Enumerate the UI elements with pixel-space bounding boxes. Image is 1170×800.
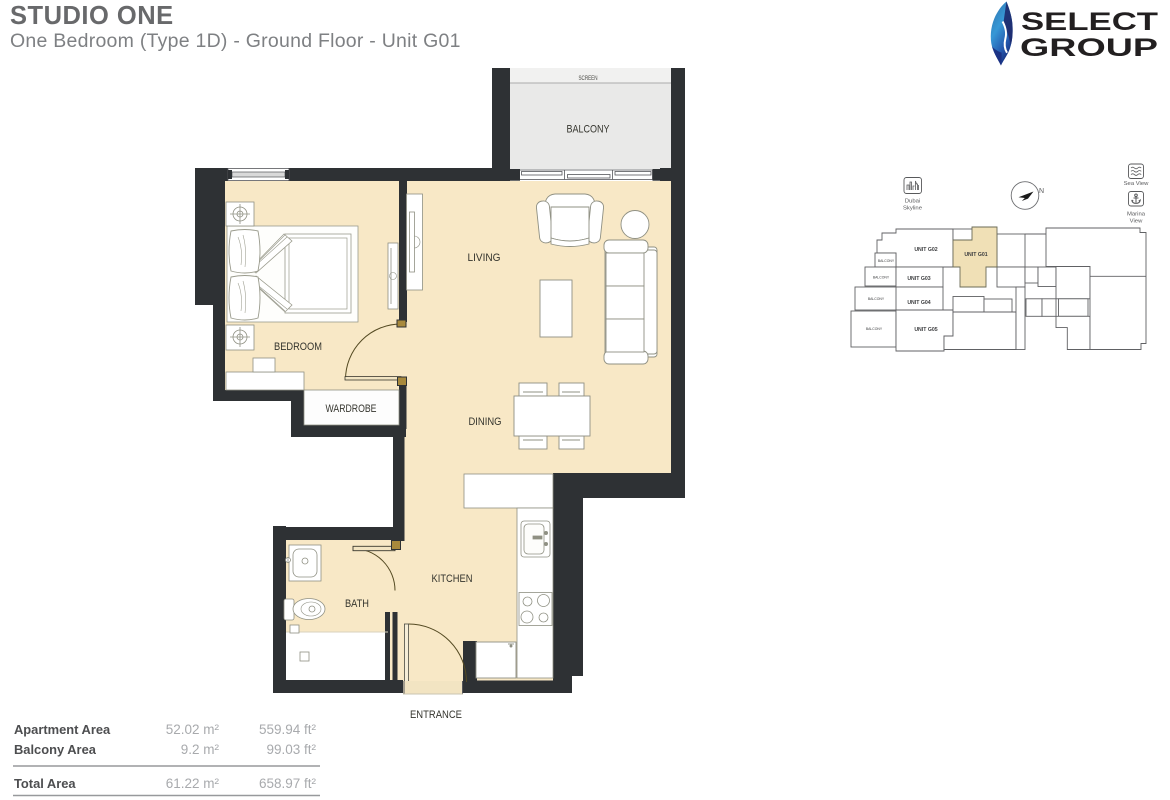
svg-text:KITCHEN: KITCHEN [432, 573, 473, 585]
svg-text:99.03 ft²: 99.03 ft² [266, 742, 316, 757]
svg-text:Balcony Area: Balcony Area [14, 742, 97, 757]
svg-text:9.2 m²: 9.2 m² [181, 742, 220, 757]
svg-text:Dubai: Dubai [905, 199, 920, 205]
svg-text:BALCONY: BALCONY [873, 276, 890, 280]
svg-text:BALCONY: BALCONY [878, 259, 895, 263]
svg-text:N: N [1039, 188, 1044, 195]
svg-text:Marina: Marina [1127, 212, 1146, 218]
svg-text:52.02 m²: 52.02 m² [166, 722, 220, 737]
svg-text:BALCONY: BALCONY [567, 124, 611, 136]
svg-text:BALCONY: BALCONY [866, 327, 883, 331]
svg-text:658.97 ft²: 658.97 ft² [259, 776, 317, 791]
svg-text:Skyline: Skyline [903, 206, 923, 212]
svg-text:61.22 m²: 61.22 m² [166, 776, 220, 791]
svg-text:Sea View: Sea View [1124, 181, 1150, 187]
svg-text:SELECT: SELECT [1021, 8, 1158, 36]
svg-text:GROUP: GROUP [1020, 34, 1158, 62]
svg-text:UNIT G05: UNIT G05 [914, 327, 937, 333]
svg-text:WARDROBE: WARDROBE [326, 403, 377, 415]
svg-text:559.94 ft²: 559.94 ft² [259, 722, 317, 737]
svg-text:View: View [1130, 219, 1143, 225]
svg-text:BEDROOM: BEDROOM [274, 341, 322, 353]
svg-text:STUDIO ONE: STUDIO ONE [10, 2, 174, 30]
svg-text:UNIT G04: UNIT G04 [907, 300, 930, 306]
svg-text:Total Area: Total Area [14, 776, 76, 791]
svg-text:BALCONY: BALCONY [868, 297, 885, 301]
svg-text:UNIT G01: UNIT G01 [964, 252, 987, 258]
svg-text:BATH: BATH [345, 598, 369, 610]
svg-text:UNIT G02: UNIT G02 [914, 247, 937, 253]
svg-text:Apartment Area: Apartment Area [14, 722, 111, 737]
svg-text:One Bedroom (Type 1D) - Ground: One Bedroom (Type 1D) - Ground Floor - U… [10, 30, 461, 52]
svg-text:DINING: DINING [469, 416, 502, 428]
svg-text:UNIT G03: UNIT G03 [907, 276, 930, 282]
svg-text:ENTRANCE: ENTRANCE [410, 709, 462, 721]
svg-text:LIVING: LIVING [468, 252, 501, 264]
svg-text:SCREEN: SCREEN [579, 76, 598, 82]
